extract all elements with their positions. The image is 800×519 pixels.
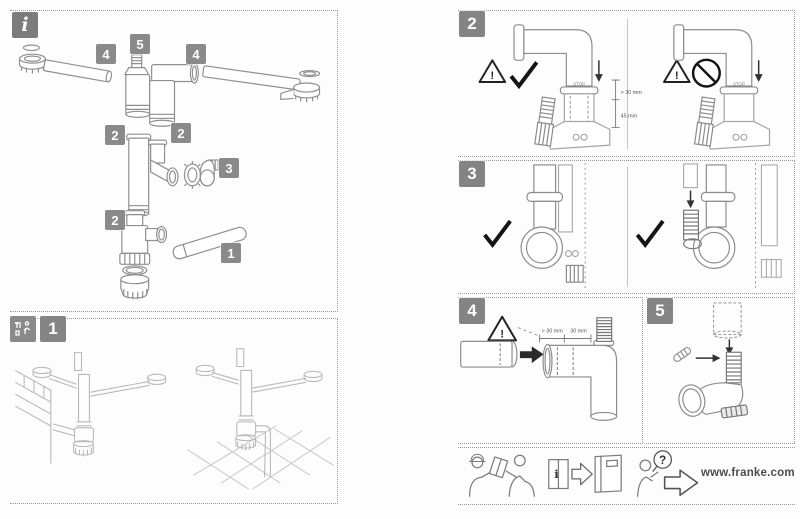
dim-label: 30 mm (570, 329, 587, 335)
step4-panel: ! > 30 mm 30 mm (458, 297, 643, 444)
part-elbow-mid (150, 63, 199, 126)
step2-badge: 2 (459, 11, 485, 37)
part-nut (184, 161, 200, 189)
part-badge-2a: 2 (105, 125, 125, 145)
leaflet-info-glyph: i (554, 467, 559, 481)
part-tailpiece-5 (125, 55, 150, 118)
prohibited-icon (693, 60, 720, 87)
checkmark-icon (637, 221, 663, 245)
part-overflow-pipe-right (202, 66, 319, 103)
parts-overview-panel (10, 10, 338, 312)
insert-arrow-icon (755, 60, 763, 82)
step2-correct-example: ! (480, 25, 643, 149)
tools-icon (10, 316, 36, 342)
keep-manual-icon (549, 455, 621, 492)
elbow-with-thread (676, 352, 748, 418)
part-badge-1: 1 (221, 243, 241, 263)
step1-illustration (10, 319, 337, 503)
dimension-lines (612, 80, 620, 127)
pointer-dash (518, 328, 538, 336)
handover-people-icon (470, 454, 535, 496)
dimension-lines (540, 334, 591, 342)
dim-upper-label: > 30 mm (621, 90, 643, 96)
apply-arrow-icon (696, 354, 721, 362)
hose-ghost (714, 303, 742, 338)
step4-illustration: ! > 30 mm 30 mm (458, 298, 642, 443)
checkmark-icon (485, 221, 511, 245)
question-glyph: ? (659, 455, 666, 467)
part-badge-2c: 2 (105, 210, 125, 230)
step2-illustration: ! (458, 11, 794, 156)
part-strainer-cap-left (20, 54, 46, 73)
part-badge-2b: 2 (171, 123, 191, 143)
warning-glyph: ! (500, 328, 504, 340)
step3-option-closed (485, 163, 585, 289)
step3-badge: 3 (459, 161, 485, 187)
insert-arrow-icon (595, 60, 603, 82)
instruction-sheet: i 4 5 4 2 2 3 2 1 (0, 0, 800, 519)
insert-arrow-icon (687, 191, 695, 209)
part-badge-5: 5 (130, 34, 150, 54)
parts-exploded-diagram (10, 11, 337, 311)
part-badge-4b: 4 (186, 44, 206, 64)
connect-arrow-icon (520, 346, 544, 363)
support-question-icon (638, 451, 698, 496)
step2-panel: ! (458, 10, 795, 157)
lubricant-icon (672, 346, 691, 362)
part-badge-4a: 4 (96, 44, 116, 64)
dim-min-label: > 30 mm (542, 329, 564, 335)
part-badge-3: 3 (219, 158, 239, 178)
warning-glyph: ! (491, 70, 495, 82)
step3-illustration (458, 161, 794, 293)
step1-badge: 1 (40, 316, 66, 342)
step2-wrong-example: ! (664, 25, 770, 149)
step3-panel (458, 160, 795, 294)
info-badge: i (12, 12, 38, 38)
step5-badge: 5 (647, 298, 673, 324)
step4-badge: 4 (459, 298, 485, 324)
warning-glyph: ! (675, 70, 679, 82)
step1-panel (10, 318, 338, 504)
stop-label: STOP (733, 81, 745, 86)
part-tee-body-2 (127, 134, 178, 216)
dim-lower-label: 45 mm (621, 114, 638, 120)
part-washer-left (24, 45, 40, 51)
stop-label: STOP (573, 81, 585, 86)
website-arrow-icon (665, 470, 698, 495)
step3-option-hose-connector (637, 163, 781, 289)
drain-pipe (461, 341, 512, 367)
checkmark-icon (511, 62, 537, 86)
installed-view-wall (15, 353, 165, 464)
installed-view-floor (187, 349, 333, 489)
website-link[interactable]: www.franke.com (701, 467, 797, 479)
part-siphon-body-2 (120, 211, 167, 299)
